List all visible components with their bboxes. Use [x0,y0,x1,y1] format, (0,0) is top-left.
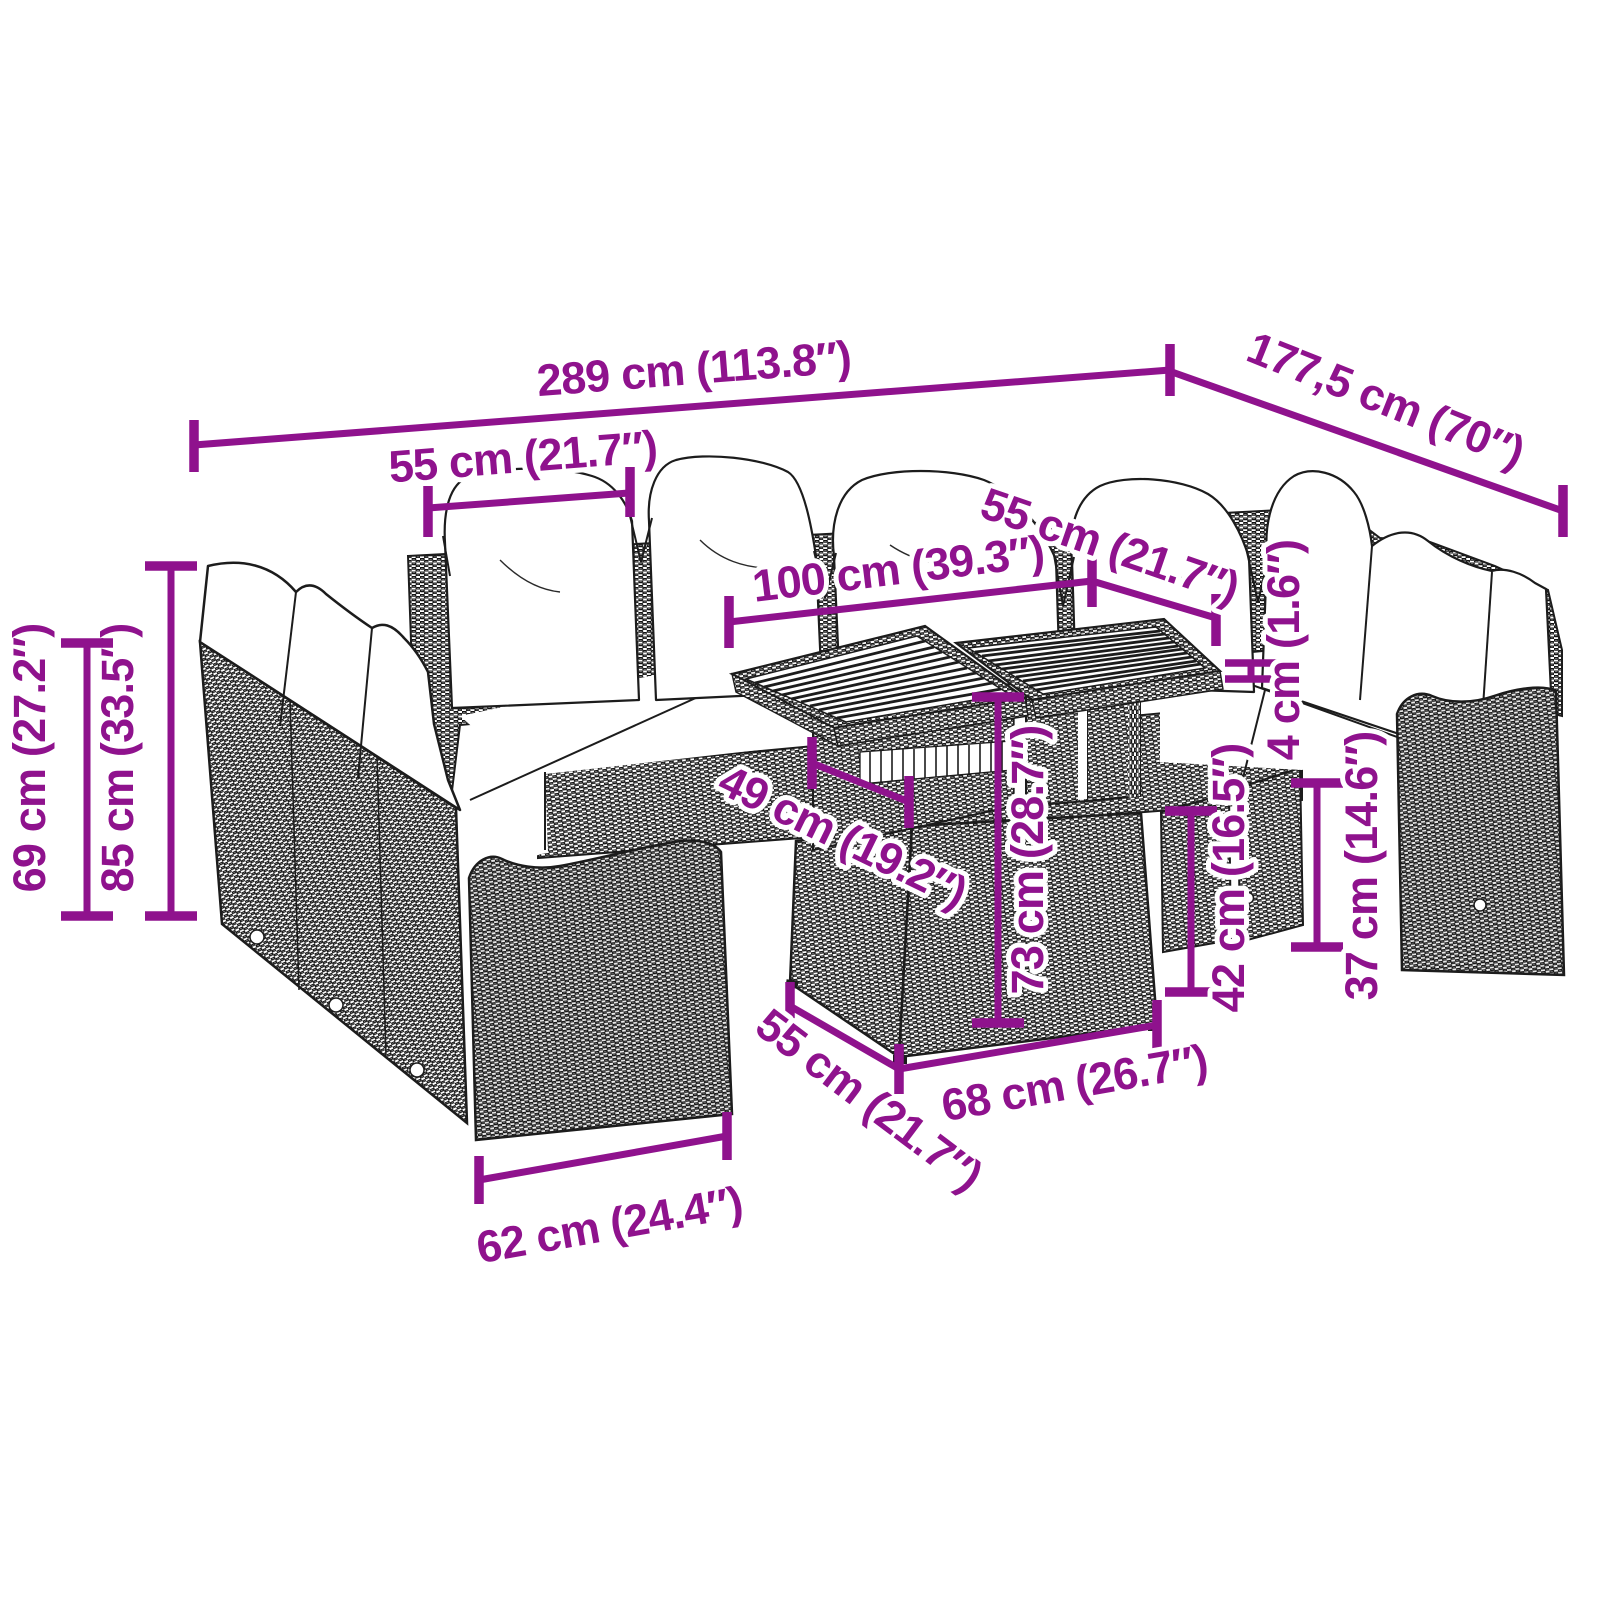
svg-text:85 cm (33.5″): 85 cm (33.5″) [92,624,143,893]
svg-text:73 cm (28.7″): 73 cm (28.7″) [1002,726,1053,995]
svg-text:37 cm (14.6″): 37 cm (14.6″) [1336,732,1387,1001]
svg-text:42 cm (16.5″): 42 cm (16.5″) [1203,744,1254,1013]
svg-text:4 cm (1.6″): 4 cm (1.6″) [1258,540,1309,760]
svg-text:69 cm (27.2″): 69 cm (27.2″) [4,624,55,893]
